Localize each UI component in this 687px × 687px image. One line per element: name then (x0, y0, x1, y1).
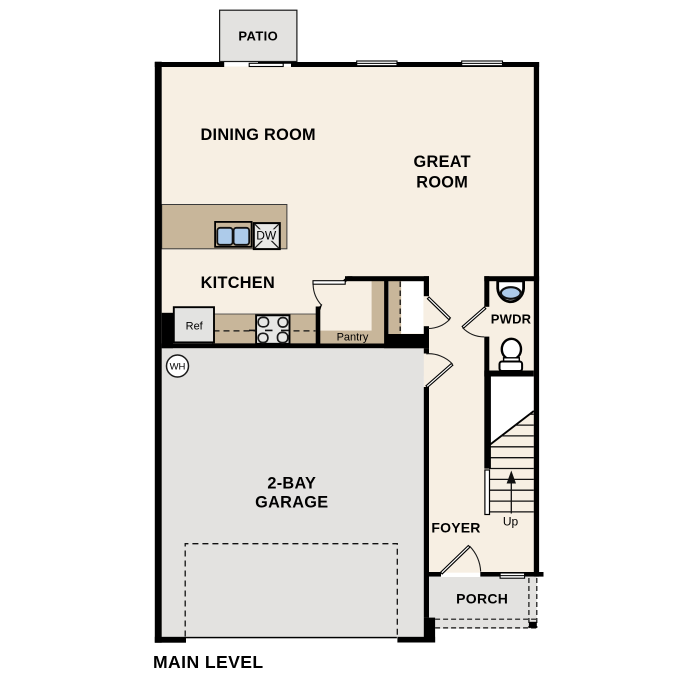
svg-text:PATIO: PATIO (238, 29, 278, 44)
svg-text:DINING ROOM: DINING ROOM (200, 126, 315, 144)
svg-text:2-BAY: 2-BAY (267, 474, 316, 492)
svg-text:ROOM: ROOM (416, 173, 468, 191)
svg-text:Pantry: Pantry (337, 331, 369, 343)
svg-text:PORCH: PORCH (456, 590, 508, 606)
svg-text:MAIN LEVEL: MAIN LEVEL (153, 652, 264, 672)
svg-text:Ref: Ref (186, 321, 204, 333)
svg-text:PWDR: PWDR (491, 311, 532, 326)
svg-text:Up: Up (503, 515, 519, 529)
svg-text:WH: WH (170, 362, 186, 373)
svg-text:GARAGE: GARAGE (255, 494, 328, 512)
svg-text:KITCHEN: KITCHEN (201, 274, 275, 292)
svg-text:FOYER: FOYER (431, 520, 480, 536)
svg-text:DW: DW (256, 229, 277, 243)
svg-text:GREAT: GREAT (414, 153, 471, 171)
